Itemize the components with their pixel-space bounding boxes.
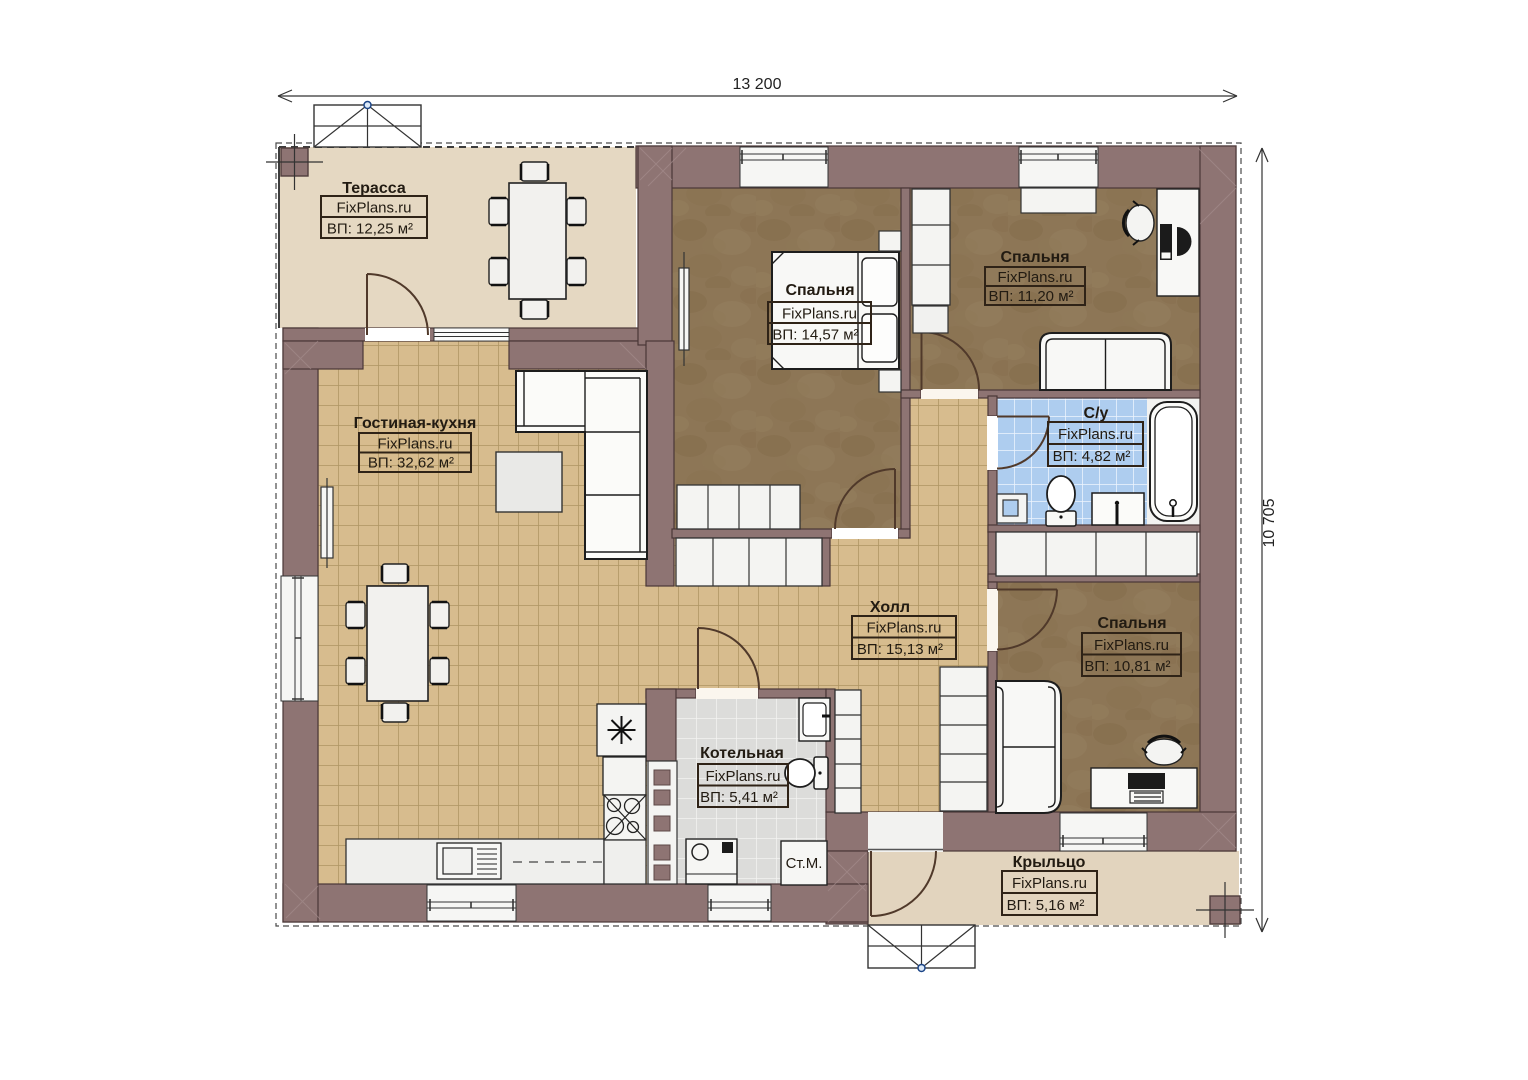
- svg-text:10 705: 10 705: [1261, 498, 1278, 547]
- svg-text:ВП: 15,13 м²: ВП: 15,13 м²: [857, 641, 943, 658]
- svg-text:ВП: 12,25 м²: ВП: 12,25 м²: [327, 221, 413, 238]
- svg-text:FixPlans.ru: FixPlans.ru: [1094, 637, 1169, 654]
- svg-text:FixPlans.ru: FixPlans.ru: [997, 269, 1072, 286]
- svg-text:FixPlans.ru: FixPlans.ru: [377, 436, 452, 453]
- svg-text:Холл: Холл: [870, 599, 910, 616]
- svg-text:FixPlans.ru: FixPlans.ru: [866, 620, 941, 637]
- svg-text:ВП: 10,81 м²: ВП: 10,81 м²: [1084, 658, 1170, 675]
- svg-text:FixPlans.ru: FixPlans.ru: [782, 306, 857, 323]
- svg-text:FixPlans.ru: FixPlans.ru: [1012, 875, 1087, 892]
- svg-text:Спальня: Спальня: [785, 282, 854, 299]
- svg-text:Спальня: Спальня: [1097, 615, 1166, 632]
- svg-text:Ст.М.: Ст.М.: [786, 855, 823, 872]
- svg-text:ВП: 5,16 м²: ВП: 5,16 м²: [1007, 897, 1085, 914]
- svg-text:FixPlans.ru: FixPlans.ru: [705, 768, 780, 785]
- svg-text:Крыльцо: Крыльцо: [1013, 854, 1086, 871]
- svg-text:ВП: 14,57 м²: ВП: 14,57 м²: [772, 327, 858, 344]
- svg-text:ВП: 32,62 м²: ВП: 32,62 м²: [368, 455, 454, 472]
- svg-text:13 200: 13 200: [733, 76, 782, 93]
- svg-text:FixPlans.ru: FixPlans.ru: [1058, 426, 1133, 443]
- svg-text:ВП: 5,41 м²: ВП: 5,41 м²: [700, 789, 778, 806]
- svg-text:Котельная: Котельная: [700, 745, 784, 762]
- svg-text:ВП: 11,20 м²: ВП: 11,20 м²: [988, 288, 1073, 305]
- svg-text:Гостиная-кухня: Гостиная-кухня: [354, 415, 477, 432]
- svg-text:ВП: 4,82 м²: ВП: 4,82 м²: [1053, 448, 1131, 465]
- svg-text:FixPlans.ru: FixPlans.ru: [336, 200, 411, 217]
- svg-text:Терасса: Терасса: [342, 180, 406, 197]
- svg-text:С/у: С/у: [1084, 405, 1109, 422]
- svg-text:Спальня: Спальня: [1000, 249, 1069, 266]
